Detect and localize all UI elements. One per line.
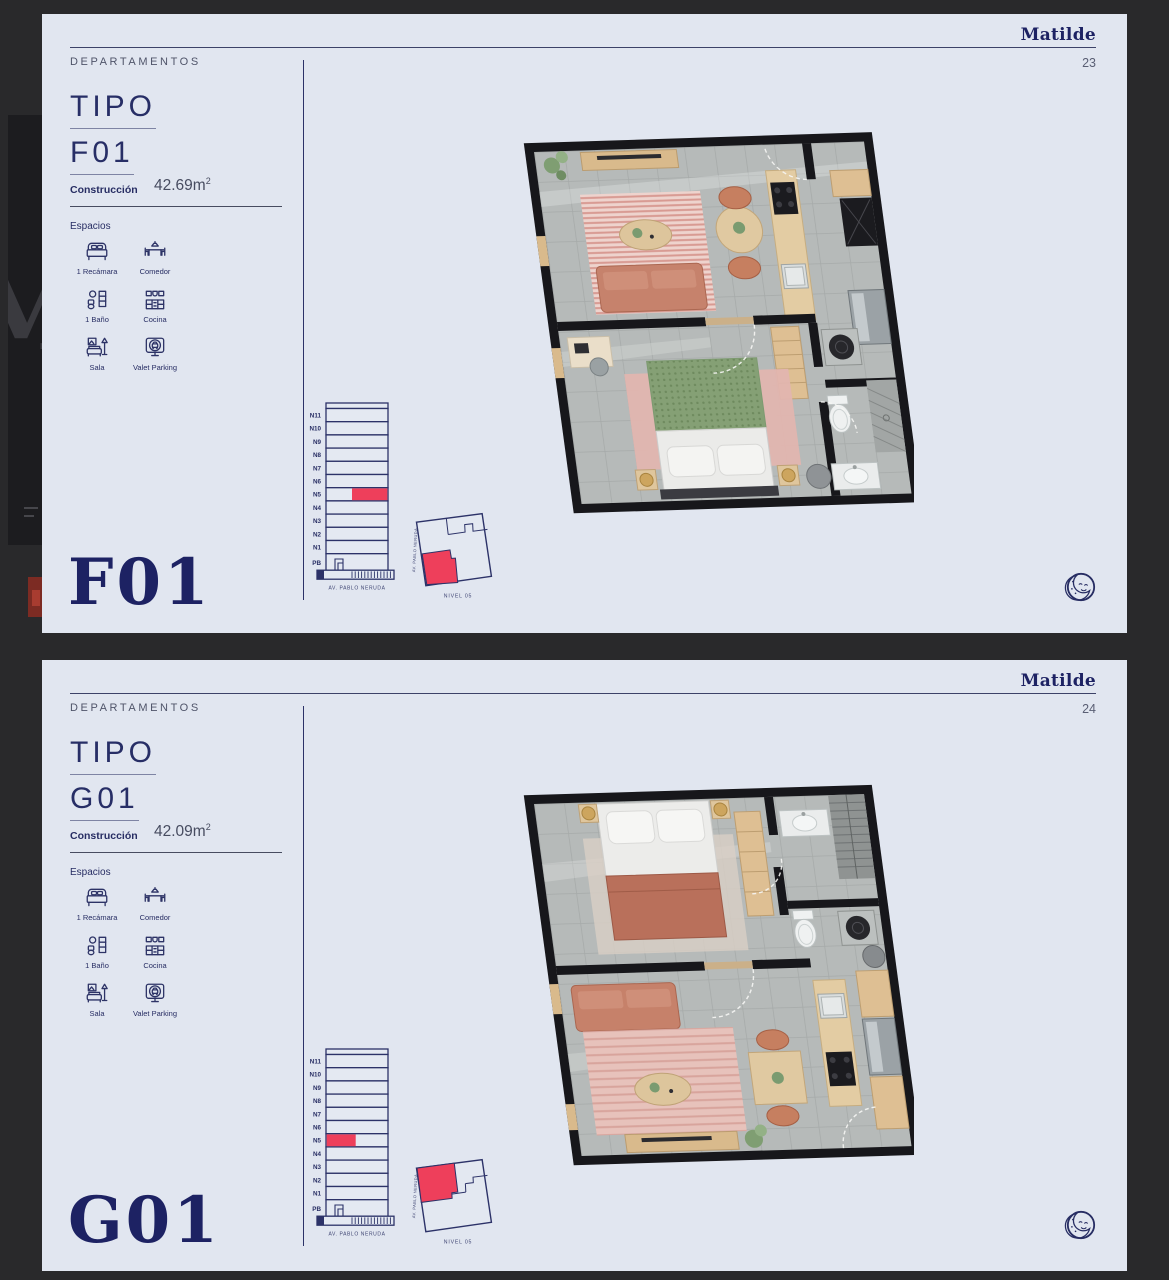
space-label: Sala: [89, 363, 104, 372]
floor-label: N7: [313, 1111, 322, 1118]
brand-logo-text: Matilde: [1021, 671, 1096, 691]
space-label: Valet Parking: [133, 1009, 177, 1018]
sofa-icon: [84, 981, 110, 1007]
floor-label: N7: [313, 465, 322, 472]
space-item-bano: 1 Baño: [68, 933, 126, 981]
valet-icon: [142, 981, 168, 1007]
site-plan-level-label: NIVEL 05: [444, 1240, 472, 1246]
valet-icon: [142, 335, 168, 361]
site-plan-level-label: NIVEL 05: [444, 594, 472, 600]
space-item-sala: Sala: [68, 981, 126, 1029]
floor-label: N3: [313, 1164, 322, 1171]
floor-label: N1: [313, 1191, 322, 1198]
street-label: AV. PABLO NERUDA: [328, 586, 385, 592]
space-label: Valet Parking: [133, 363, 177, 372]
bath-icon: [84, 933, 110, 959]
highlighted-floor-n5: [352, 488, 387, 500]
space-label: Comedor: [140, 913, 171, 922]
bath-icon: [84, 287, 110, 313]
page-number: 24: [1082, 702, 1096, 716]
floor-label: N1: [313, 545, 322, 552]
brand-moon-logo: [1061, 1205, 1101, 1245]
floor-label: N8: [313, 1098, 322, 1105]
page-number: 23: [1082, 56, 1096, 70]
floor-label: N10: [309, 1072, 321, 1079]
space-label: Cocina: [143, 961, 166, 970]
tipo-line1: TIPO: [70, 736, 156, 775]
space-label: 1 Baño: [85, 315, 109, 324]
floor-label: N9: [313, 1085, 322, 1092]
space-item-comedor: Comedor: [126, 239, 184, 287]
floor-label: N4: [313, 505, 322, 512]
section-label: DEPARTAMENTOS: [70, 56, 201, 68]
espacios-label: Espacios: [70, 867, 111, 878]
floor-label: N11: [310, 413, 322, 420]
espacios-label: Espacios: [70, 221, 111, 232]
space-item-recamara: 1 Recámara: [68, 885, 126, 933]
background-text-line: [24, 507, 38, 509]
floor-label: PB: [312, 1206, 321, 1213]
floor-label: N2: [313, 1177, 322, 1184]
tipo-heading: TIPO F01: [70, 90, 156, 182]
space-label: Comedor: [140, 267, 171, 276]
background-red-thumbnail: [28, 577, 42, 617]
bed-icon: [84, 885, 110, 911]
space-item-sala: Sala: [68, 335, 126, 383]
street-label: AV. PABLO NERUDA: [328, 1232, 385, 1238]
construction-value: 42.69m2: [154, 176, 211, 195]
space-item-bano: 1 Baño: [68, 287, 126, 335]
site-plan: AV. PABLO NERUDA NIVEL 05: [408, 508, 508, 600]
floor-label: N2: [313, 531, 322, 538]
dining-icon: [142, 239, 168, 265]
brand-moon-logo: [1061, 567, 1101, 607]
floor-label: N5: [313, 492, 322, 499]
section-label: DEPARTAMENTOS: [70, 702, 201, 714]
space-item-cocina: Cocina: [126, 933, 184, 981]
construction-rule: [70, 852, 282, 853]
construction-label: Construcción: [70, 184, 138, 196]
site-plan-street-label: AV. PABLO NERUDA: [411, 1174, 418, 1219]
floor-label: N5: [313, 1138, 322, 1145]
space-label: Cocina: [143, 315, 166, 324]
floor-label: N6: [313, 1125, 322, 1132]
space-label: 1 Recámara: [77, 267, 118, 276]
floor-label: N8: [313, 452, 322, 459]
floor-plan-g01: [508, 784, 914, 1178]
tipo-line2: G01: [70, 782, 139, 821]
tipo-heading: TIPO G01: [70, 736, 156, 828]
site-plan-street-label: AV. PABLO NERUDA: [411, 528, 418, 573]
building-elevation: N11 N10 N9 N8 N7 N6 N5 N4 N3 N2 N1 PB AV…: [302, 398, 406, 594]
highlighted-unit: [417, 1163, 458, 1203]
site-plan: AV. PABLO NERUDA NIVEL 05: [408, 1154, 508, 1246]
floor-label: N4: [313, 1151, 322, 1158]
construction-label: Construcción: [70, 830, 138, 842]
brochure-page-f01: Matilde DEPARTAMENTOS 23 TIPO F01 Constr…: [42, 14, 1127, 633]
header-rule: [70, 47, 1096, 48]
space-item-cocina: Cocina: [126, 287, 184, 335]
header-rule: [70, 693, 1096, 694]
spaces-grid: 1 Recámara Comedor 1 Baño Cocina Sala Va…: [68, 239, 184, 383]
floor-label: N3: [313, 518, 322, 525]
floor-label: N11: [310, 1059, 322, 1066]
unit-big-label: G01: [68, 1189, 221, 1253]
space-label: Sala: [89, 1009, 104, 1018]
construction-rule: [70, 206, 282, 207]
space-item-valet: Valet Parking: [126, 981, 184, 1029]
construction-value: 42.09m2: [154, 822, 211, 841]
brochure-page-g01: Matilde DEPARTAMENTOS 24 TIPO G01 Constr…: [42, 660, 1127, 1271]
floor-plan-f01: [508, 130, 914, 524]
spaces-grid: 1 Recámara Comedor 1 Baño Cocina Sala Va…: [68, 885, 184, 1029]
background-letter: M: [8, 255, 42, 373]
space-item-valet: Valet Parking: [126, 335, 184, 383]
building-elevation: N11 N10 N9 N8 N7 N6 N5 N4 N3 N2 N1 PB AV…: [302, 1044, 406, 1240]
kitchen-icon: [142, 933, 168, 959]
floor-label: N10: [309, 426, 321, 433]
space-item-recamara: 1 Recámara: [68, 239, 126, 287]
bed-icon: [84, 239, 110, 265]
brand-logo-text: Matilde: [1021, 25, 1096, 45]
dining-icon: [142, 885, 168, 911]
sofa-icon: [84, 335, 110, 361]
tipo-line1: TIPO: [70, 90, 156, 129]
highlighted-floor-n5: [327, 1134, 356, 1146]
kitchen-icon: [142, 287, 168, 313]
space-label: 1 Recámara: [77, 913, 118, 922]
background-text-line: [24, 515, 34, 517]
floor-label: N6: [313, 479, 322, 486]
space-item-comedor: Comedor: [126, 885, 184, 933]
tipo-line2: F01: [70, 136, 134, 175]
floor-label: N9: [313, 439, 322, 446]
background-red-glyph: [32, 590, 40, 606]
background-app-panel: M: [8, 115, 42, 545]
space-label: 1 Baño: [85, 961, 109, 970]
floor-label: PB: [312, 560, 321, 567]
unit-big-label: F01: [68, 551, 212, 615]
